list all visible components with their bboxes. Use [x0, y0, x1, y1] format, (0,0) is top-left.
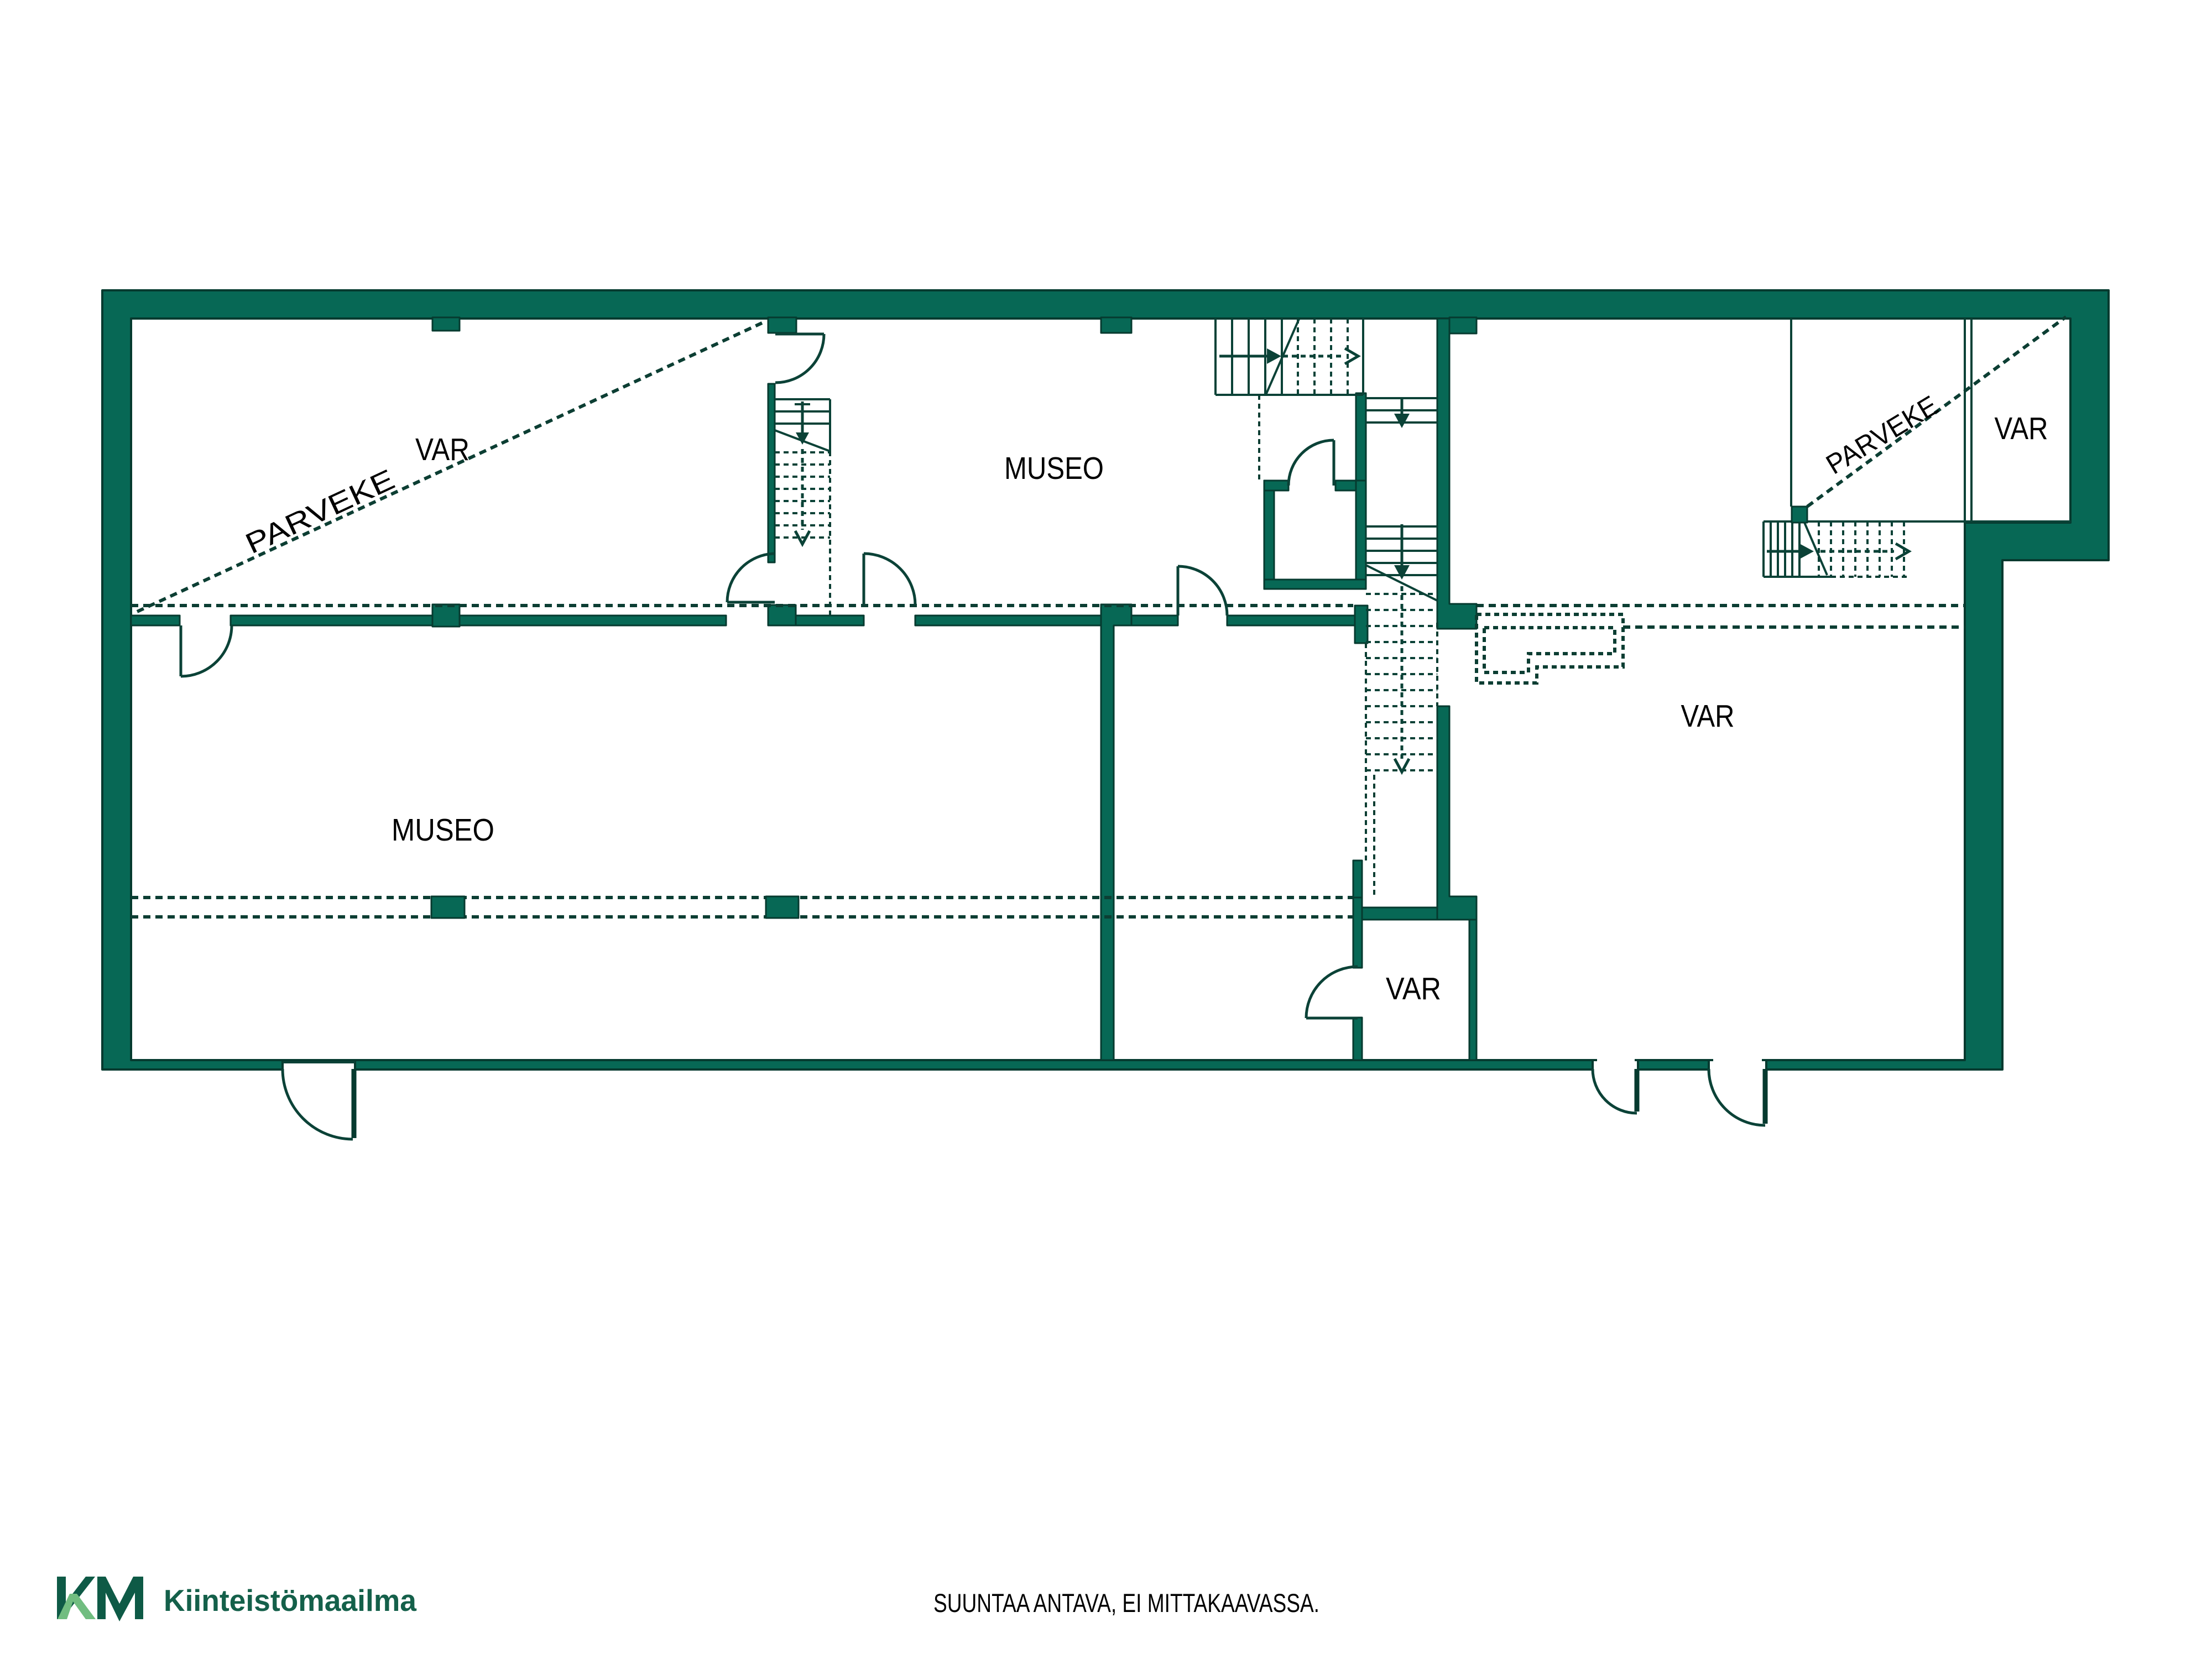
svg-text:Kiinteistömaailma: Kiinteistömaailma	[164, 1583, 416, 1618]
svg-text:VAR: VAR	[1386, 971, 1441, 1006]
svg-text:VAR: VAR	[1995, 411, 2048, 446]
svg-text:VAR: VAR	[415, 432, 469, 467]
svg-text:MUSEO: MUSEO	[392, 812, 494, 848]
svg-text:MUSEO: MUSEO	[1004, 451, 1104, 486]
svg-text:SUUNTAA ANTAVA, EI MITTAKAAVAS: SUUNTAA ANTAVA, EI MITTAKAAVASSA.	[933, 1588, 1319, 1618]
svg-text:VAR: VAR	[1681, 698, 1735, 734]
